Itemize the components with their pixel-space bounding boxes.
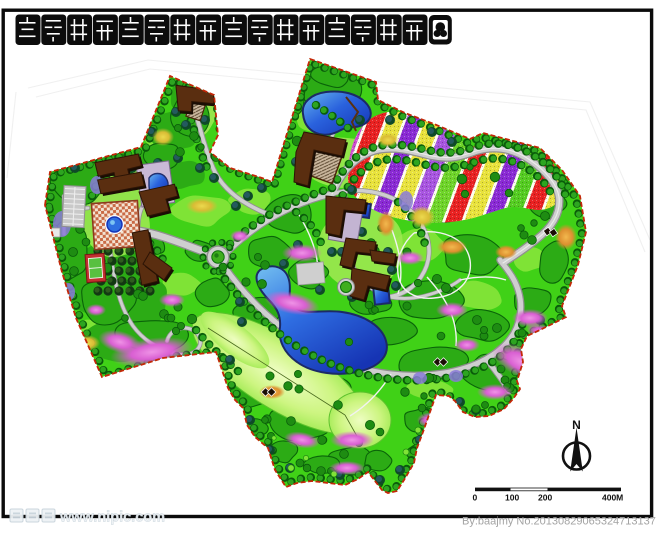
svg-text:200: 200 [538,493,552,503]
svg-text:0: 0 [473,493,478,503]
svg-text:100: 100 [505,493,519,503]
svg-text:400M: 400M [602,493,623,503]
svg-text:www.nipic.com: www.nipic.com [59,510,165,526]
svg-text:N: N [572,418,581,432]
svg-text:By:baajmy No.2013082906532471: By:baajmy No.20130829065324713137 [462,516,656,528]
